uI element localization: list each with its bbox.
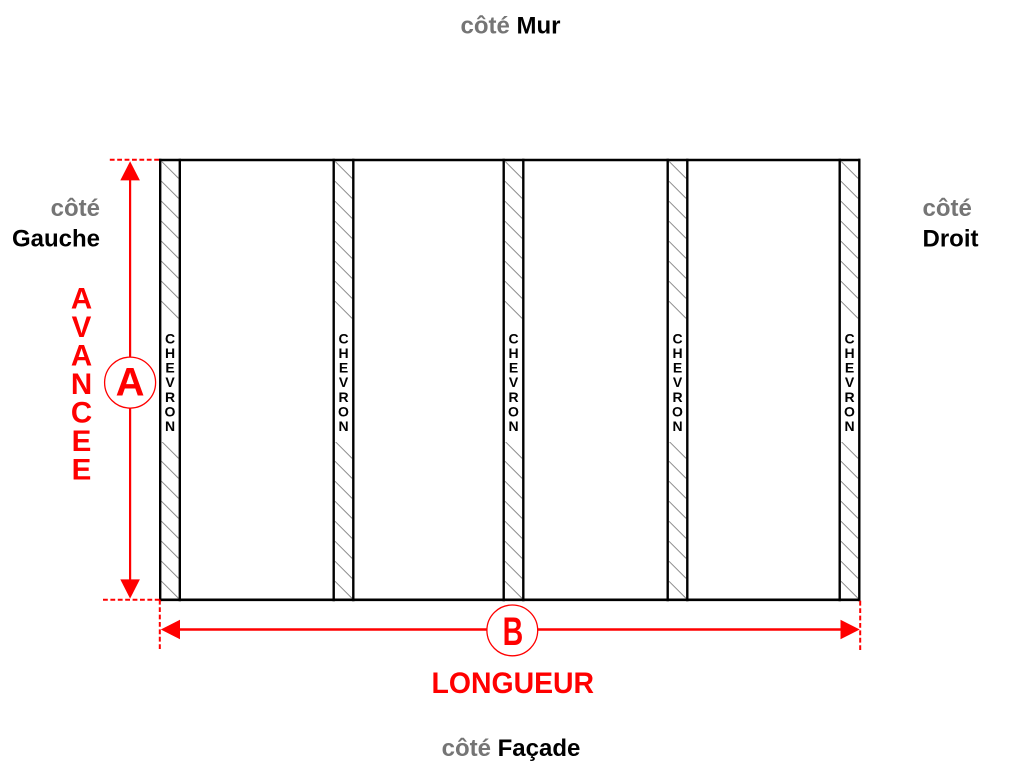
svg-text:H: H [508,345,518,361]
svg-text:R: R [338,389,348,405]
svg-text:V: V [673,374,683,390]
svg-text:C: C [508,330,518,346]
svg-text:A: A [116,360,145,404]
svg-text:C: C [844,330,854,346]
svg-text:R: R [672,389,682,405]
svg-text:E: E [72,454,92,487]
svg-text:C: C [165,330,175,346]
svg-text:côté: côté [51,195,100,222]
svg-text:B: B [503,610,524,654]
svg-text:V: V [165,374,175,390]
svg-text:E: E [339,360,348,376]
svg-text:O: O [338,403,349,419]
svg-text:N: N [165,418,175,434]
svg-text:E: E [845,360,854,376]
svg-text:côté: côté [923,195,972,222]
svg-text:N: N [844,418,854,434]
svg-text:E: E [165,360,174,376]
svg-text:H: H [672,345,682,361]
svg-text:O: O [165,403,176,419]
svg-text:E: E [509,360,518,376]
svg-text:N: N [338,418,348,434]
svg-text:E: E [673,360,682,376]
svg-text:H: H [844,345,854,361]
svg-text:Droit: Droit [923,225,979,252]
svg-text:O: O [672,403,683,419]
svg-text:O: O [508,403,519,419]
svg-text:H: H [165,345,175,361]
svg-text:R: R [165,389,175,405]
svg-text:Gauche: Gauche [12,225,100,252]
svg-text:C: C [672,330,682,346]
svg-text:V: V [845,374,855,390]
svg-text:V: V [339,374,349,390]
svg-text:côté Mur: côté Mur [460,13,560,40]
svg-text:H: H [338,345,348,361]
svg-text:C: C [338,330,348,346]
svg-text:LONGUEUR: LONGUEUR [432,667,595,700]
svg-text:N: N [508,418,518,434]
svg-text:V: V [509,374,519,390]
svg-text:O: O [844,403,855,419]
svg-text:R: R [844,389,854,405]
svg-text:R: R [508,389,518,405]
svg-text:N: N [672,418,682,434]
svg-text:côté Façade: côté Façade [442,735,581,762]
